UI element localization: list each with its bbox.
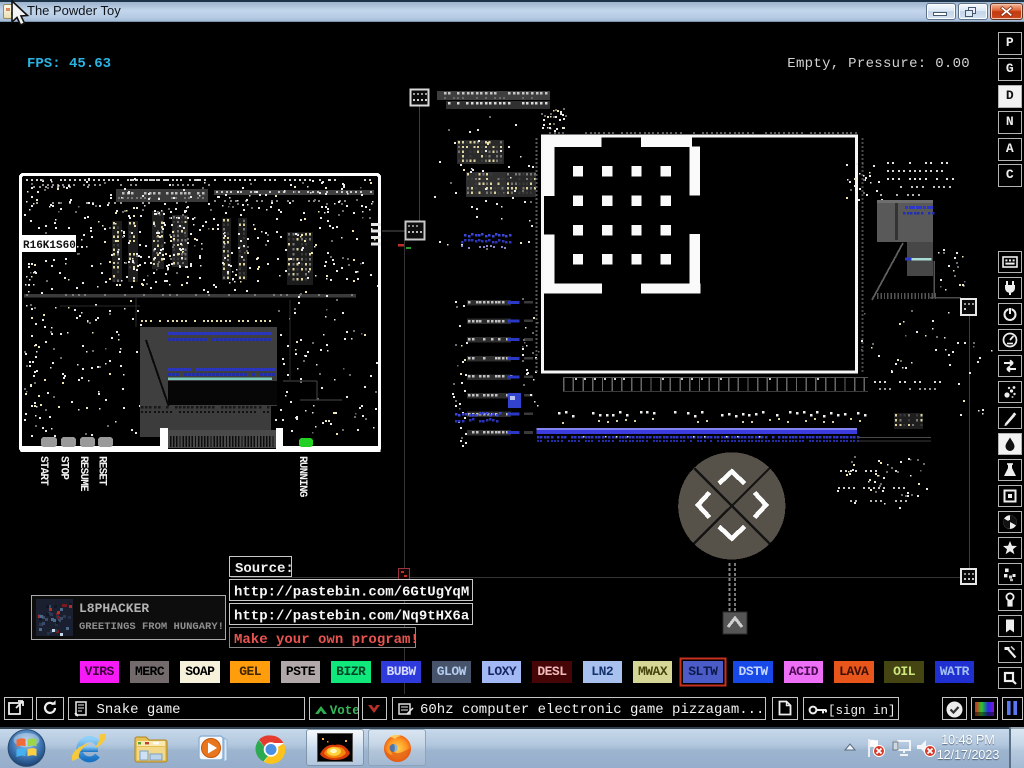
svg-text:L8PHACKER: L8PHACKER bbox=[79, 601, 149, 616]
svg-text:Empty, Pressure: 0.00: Empty, Pressure: 0.00 bbox=[787, 56, 970, 72]
svg-text:RUNNING: RUNNING bbox=[296, 456, 308, 498]
svg-text:STOP: STOP bbox=[58, 456, 70, 480]
svg-text:START: START bbox=[37, 456, 49, 486]
svg-text:Source:: Source: bbox=[235, 561, 294, 577]
svg-text:RESET: RESET bbox=[96, 456, 108, 486]
svg-text:R16K1S60: R16K1S60 bbox=[23, 240, 76, 252]
svg-text:RESUME: RESUME bbox=[77, 456, 89, 492]
svg-text:http://pastebin.com/6GtUgYqM: http://pastebin.com/6GtUgYqM bbox=[234, 585, 469, 601]
svg-text:FPS: 45.63: FPS: 45.63 bbox=[27, 56, 111, 72]
svg-text:Make your own program!: Make your own program! bbox=[234, 632, 419, 648]
svg-text:GREETINGS FROM HUNGARY!: GREETINGS FROM HUNGARY! bbox=[79, 621, 224, 633]
svg-text:http://pastebin.com/Nq9tHX6a: http://pastebin.com/Nq9tHX6a bbox=[234, 609, 470, 625]
